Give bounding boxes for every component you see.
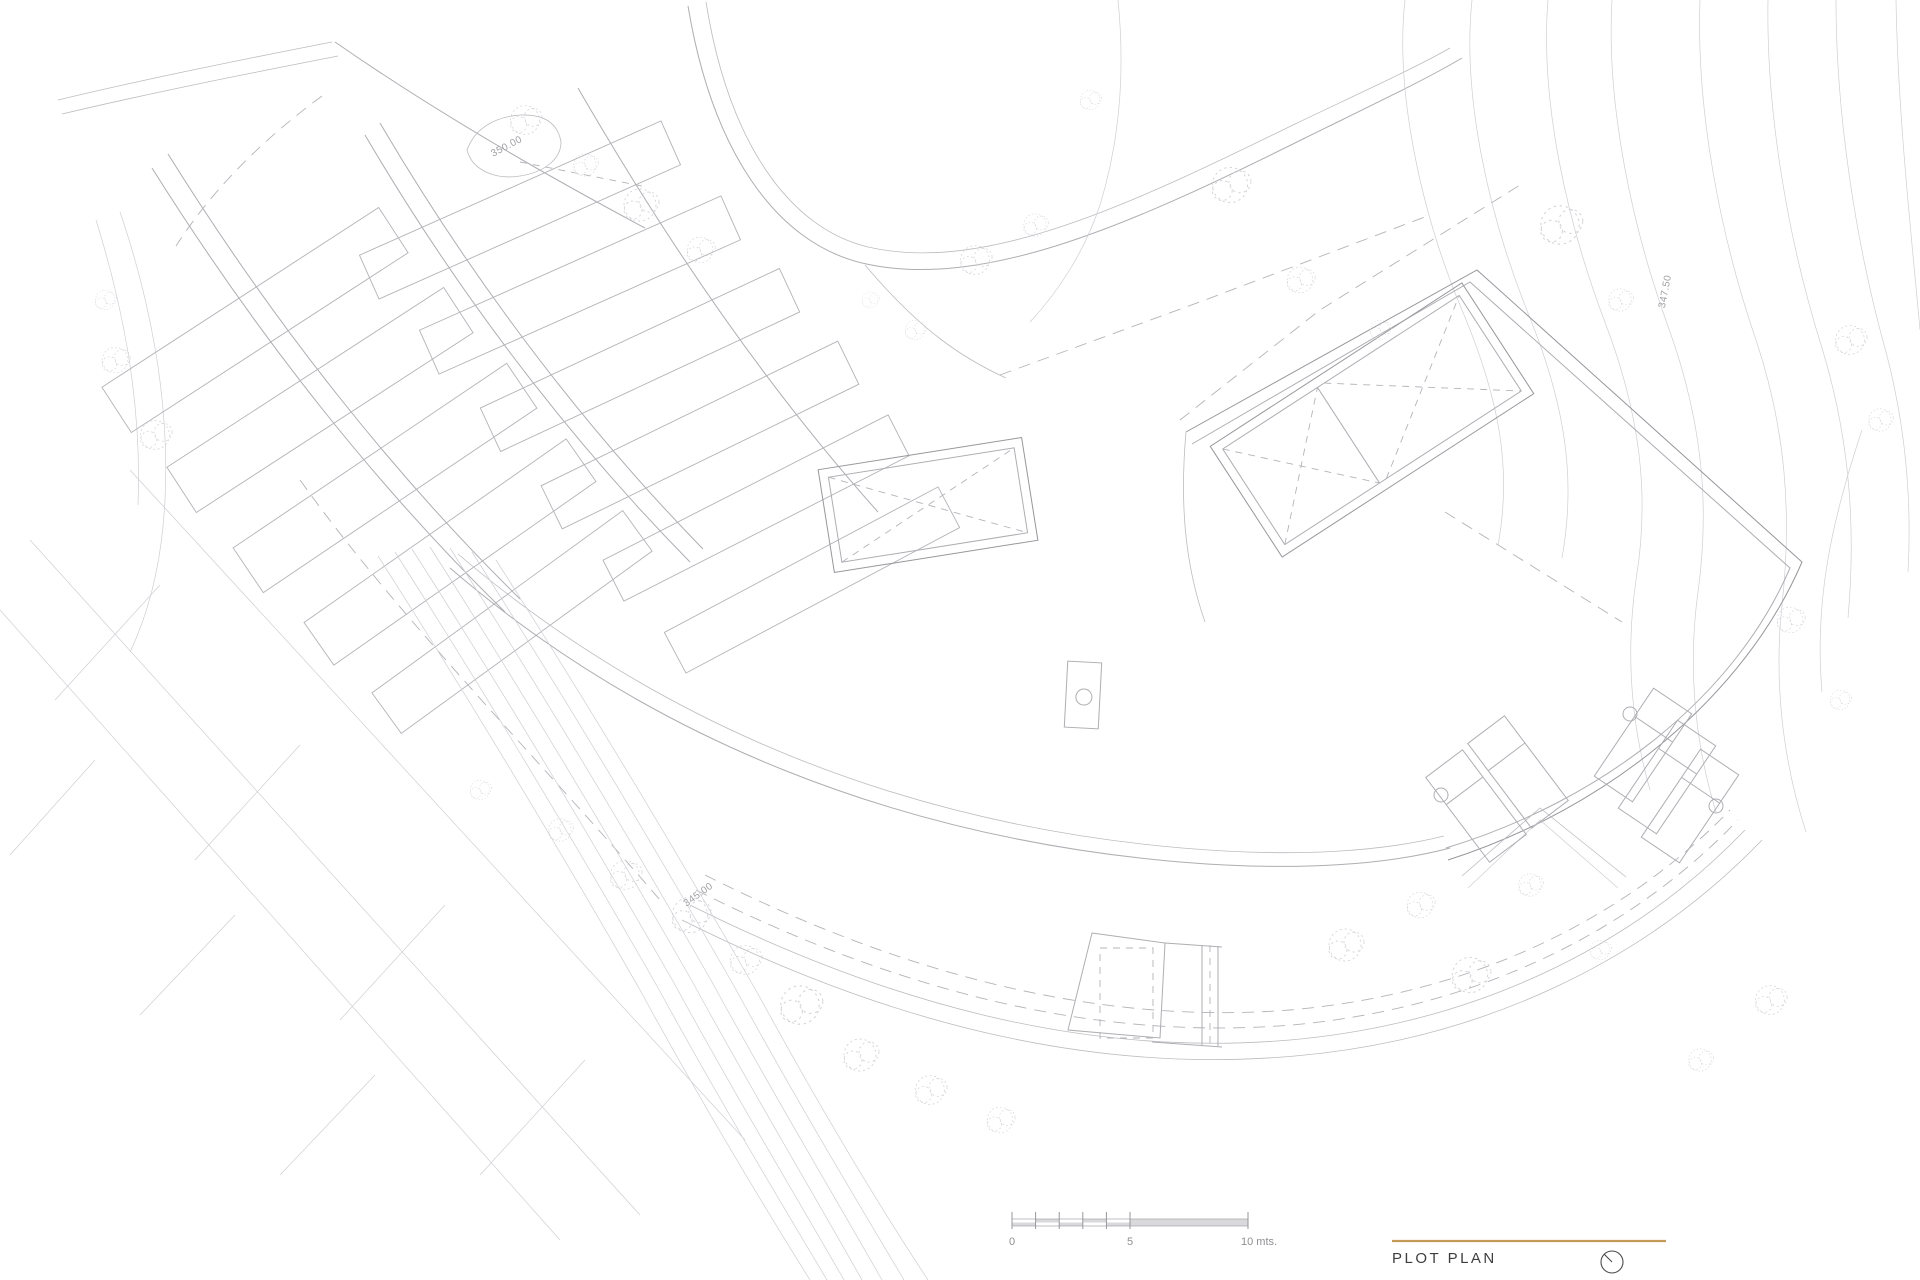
lounge-chairs-right	[1594, 688, 1738, 863]
fire-pit	[1064, 661, 1101, 729]
lounge-chair	[1426, 750, 1527, 862]
plot-plan-drawing: 350.00 347.50	[0, 0, 1920, 1280]
terrace-edge-arcs	[450, 554, 1626, 888]
lounge-chair	[1468, 716, 1569, 828]
scale-label-5: 5	[1127, 1236, 1133, 1248]
plot-plan-page: { "drawing": { "title": "PLOT PLAN", "ac…	[0, 0, 1920, 1280]
scale-label-10: 10 mts.	[1241, 1236, 1277, 1248]
vegetation	[95, 90, 1893, 1132]
lounge-chair	[1618, 720, 1715, 834]
side-table	[1434, 788, 1448, 802]
contour-lines-top-right: 347.50	[1403, 0, 1920, 832]
skylight-single	[818, 438, 1038, 573]
topleft-road-lines	[58, 42, 338, 652]
terraced-planter-fan	[102, 42, 960, 733]
side-table	[1623, 707, 1637, 721]
elevation-label-347: 347.50	[1657, 274, 1674, 309]
upper-curved-path	[688, 0, 1462, 378]
ramp-stair-panels	[1068, 933, 1222, 1047]
title-block: PLOT PLAN	[1392, 1241, 1666, 1273]
elevation-marker-350: 350.00	[467, 115, 642, 186]
elevation-label-350: 350.00	[489, 134, 524, 159]
planter-bed-group-right	[360, 121, 960, 673]
lower-curved-walk	[682, 810, 1762, 1060]
north-indicator-icon	[1601, 1251, 1623, 1273]
lounge-chairs-left	[1426, 716, 1569, 862]
planter-bed-group-left	[102, 207, 652, 733]
skylight-pair	[1210, 283, 1533, 557]
hillside-fields: 345.00	[0, 470, 928, 1280]
elevation-label-345: 345.00	[682, 881, 716, 910]
sheet-title: PLOT PLAN	[1392, 1250, 1497, 1267]
scale-label-0: 0	[1009, 1236, 1015, 1248]
scale-bar: 0 5 10 mts.	[1009, 1212, 1277, 1248]
